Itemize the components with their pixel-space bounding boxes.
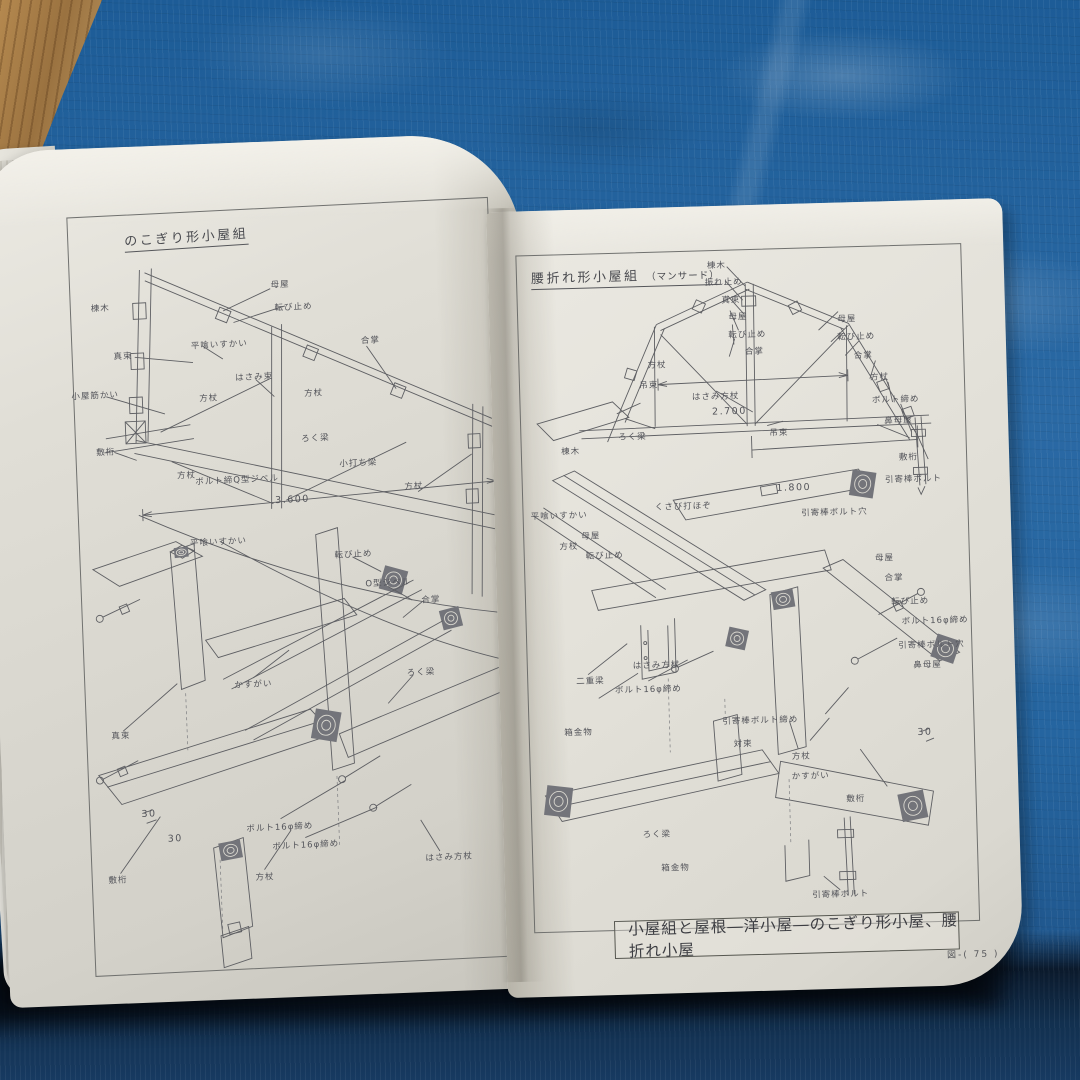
caption-box: 小屋組と屋根―洋小屋―のこぎり形小屋、腰折れ小屋 [614, 911, 960, 959]
diagram-label: 方杖 [304, 386, 323, 399]
diagram-label: 転び止め [837, 330, 875, 343]
diagram-label: 母屋 [270, 278, 289, 291]
diagram-label: ろく梁 [407, 665, 436, 678]
diagram-label: 方杖 [404, 480, 423, 493]
page-number-footer: 図-( 75 ) [947, 946, 1000, 960]
diagram-label: 方杖 [559, 540, 578, 553]
diagram-label: 敷桁 [846, 792, 865, 805]
diagram-label: 吊束 [639, 378, 658, 391]
diagram-label: 棟木 [707, 258, 726, 271]
diagram-label: 転び止め [728, 327, 766, 340]
left-diagram-labels: 棟木母屋転び止め平喰いすかい合掌真束小屋筋かいはさみ束方杖方杖敷桁方杖ボルト締Q… [67, 198, 516, 976]
diagram-label: くさび打ほぞ [655, 499, 712, 513]
dimension-label: 30 [917, 726, 932, 737]
diagram-label: 振れ止め [704, 275, 742, 288]
dimension-label: 30 [141, 808, 156, 820]
diagram-label: 転び止め [891, 594, 929, 607]
diagram-label: 母屋 [581, 529, 600, 542]
diagram-label: 真束 [721, 293, 740, 306]
diagram-label: 真束 [113, 350, 132, 363]
diagram-label: 鼻母屋 [913, 658, 942, 671]
diagram-label: 合掌 [745, 345, 764, 358]
dimension-label: 30 [168, 833, 183, 845]
diagram-label: 小屋筋かい [71, 388, 119, 402]
diagram-label: 母屋 [837, 312, 856, 325]
diagram-label: 対束 [734, 738, 753, 751]
diagram-label: 引寄棒ボルト締め [722, 713, 798, 727]
right-diagram-frame: 腰折れ形小屋組 （マンサード） [515, 243, 980, 933]
diagram-label: 転び止め [585, 548, 623, 561]
diagram-label: 平喰いすかい [530, 509, 587, 523]
diagram-label: 吊束 [769, 426, 788, 439]
diagram-label: 敷桁 [108, 874, 127, 887]
diagram-label: 平喰いすかい [191, 336, 248, 351]
right-page: 腰折れ形小屋組 （マンサード） [486, 198, 1024, 998]
diagram-label: 鼻母屋 [884, 414, 913, 427]
dimension-label: 3.600 [275, 493, 310, 506]
diagram-label: 転び止め [334, 547, 372, 561]
diagram-label: 箱金物 [564, 725, 593, 738]
diagram-label: 合掌 [854, 349, 873, 362]
diagram-label: 引寄棒ボルト穴 [898, 637, 965, 651]
diagram-label: 方杖 [647, 358, 666, 371]
diagram-label: はさみ方杖 [692, 390, 740, 403]
diagram-label: 引寄棒ボルト [885, 472, 942, 486]
diagram-label: 棟木 [90, 301, 109, 314]
diagram-label: 方杖 [177, 468, 196, 481]
diagram-label: 敷桁 [96, 445, 115, 458]
diagram-label: はさみ束 [235, 369, 273, 383]
diagram-label: 方杖 [870, 371, 889, 384]
diagram-label: 母屋 [875, 551, 894, 564]
diagram-label: 敷桁 [899, 450, 918, 463]
diagram-label: ボルト16φ締め [272, 837, 339, 852]
diagram-label: 小打ち梁 [339, 455, 377, 469]
diagram-label: 箱金物 [661, 861, 690, 874]
diagram-label: ボルト締め [872, 392, 920, 405]
book-photo: のこぎり形小屋組 [0, 0, 1080, 1080]
diagram-label: ろく梁 [301, 431, 330, 444]
left-diagram-frame: のこぎり形小屋組 [66, 197, 517, 977]
diagram-label: 方杖 [199, 391, 218, 404]
diagram-label: 引寄棒ボルト穴 [801, 504, 868, 518]
diagram-label: 方杖 [255, 870, 274, 883]
diagram-label: 合掌 [421, 593, 440, 606]
diagram-label: はさみ方杖 [633, 658, 681, 671]
dimension-label: 1.800 [776, 482, 811, 494]
diagram-label: ボルト16φ締め [615, 682, 682, 696]
diagram-label: 二重梁 [576, 674, 605, 687]
diagram-label: かすがい [234, 677, 272, 691]
diagram-label: 棟木 [561, 445, 580, 458]
diagram-label: 母屋 [728, 310, 747, 323]
diagram-label: はさみ方杖 [425, 849, 473, 863]
diagram-label: 真束 [111, 729, 130, 742]
dimension-label: 2.700 [712, 406, 747, 418]
diagram-label: ボルト16φ締め [902, 613, 969, 627]
diagram-label: ろく梁 [618, 429, 647, 442]
left-page: のこぎり形小屋組 [0, 132, 550, 1008]
diagram-label: ろく梁 [642, 828, 671, 841]
diagram-label: ボルト締Q型ジベル [195, 472, 279, 488]
right-diagram-labels: 棟木振れ止め真束母屋転び止め合掌母屋転び止め合掌方杖ボルト締め鼻母屋方杖吊束はさ… [516, 244, 979, 932]
diagram-label: O型ジベル [365, 575, 411, 589]
diagram-label: 転び止め [274, 299, 312, 313]
diagram-label: 引寄棒ボルト [812, 887, 869, 901]
diagram-label: かすがい [792, 769, 830, 782]
diagram-label: 平喰いすかい [190, 534, 247, 549]
diagram-label: 合掌 [361, 334, 380, 347]
diagram-label: 方杖 [792, 750, 811, 763]
diagram-label: ボルト16φ締め [246, 819, 313, 834]
diagram-label: 合掌 [884, 571, 903, 584]
